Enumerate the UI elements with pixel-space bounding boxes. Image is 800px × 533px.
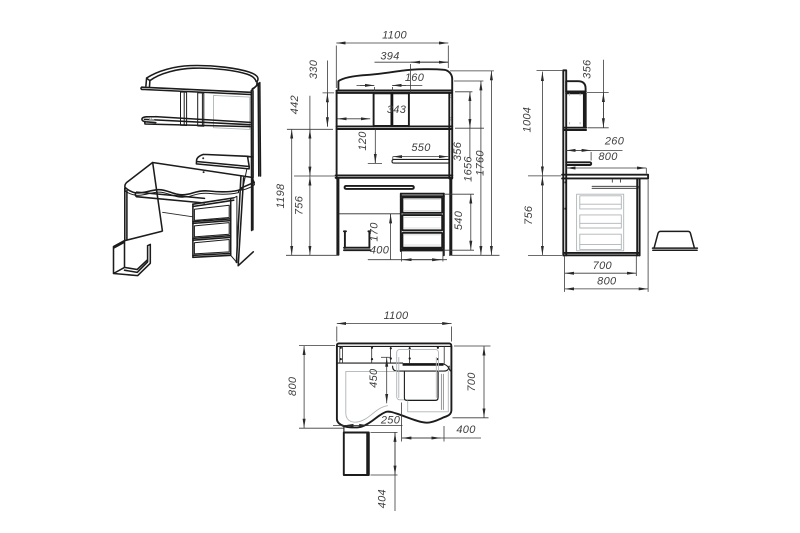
svg-text:356: 356 (582, 59, 594, 79)
svg-text:404: 404 (376, 489, 388, 508)
svg-text:1100: 1100 (382, 30, 407, 42)
svg-text:700: 700 (593, 260, 613, 272)
svg-text:442: 442 (289, 95, 301, 114)
svg-text:400: 400 (456, 424, 476, 436)
svg-text:800: 800 (598, 151, 618, 163)
svg-text:260: 260 (604, 135, 625, 147)
svg-text:170: 170 (369, 222, 381, 242)
svg-text:1760: 1760 (474, 150, 486, 176)
svg-text:120: 120 (357, 131, 369, 151)
svg-text:250: 250 (380, 415, 401, 427)
svg-text:550: 550 (411, 142, 431, 154)
svg-text:394: 394 (380, 51, 399, 63)
svg-text:343: 343 (387, 104, 407, 116)
svg-text:700: 700 (466, 372, 478, 392)
svg-text:1100: 1100 (384, 310, 409, 322)
svg-text:800: 800 (597, 276, 617, 288)
svg-text:1004: 1004 (522, 107, 534, 133)
svg-text:330: 330 (308, 59, 320, 79)
svg-text:400: 400 (370, 245, 390, 257)
svg-text:450: 450 (368, 368, 380, 388)
svg-text:540: 540 (453, 210, 465, 230)
svg-text:1198: 1198 (275, 183, 287, 208)
svg-text:1656: 1656 (463, 156, 475, 182)
svg-text:160: 160 (405, 72, 425, 84)
svg-text:756: 756 (293, 195, 305, 215)
svg-text:800: 800 (287, 376, 299, 396)
svg-text:756: 756 (523, 205, 535, 225)
